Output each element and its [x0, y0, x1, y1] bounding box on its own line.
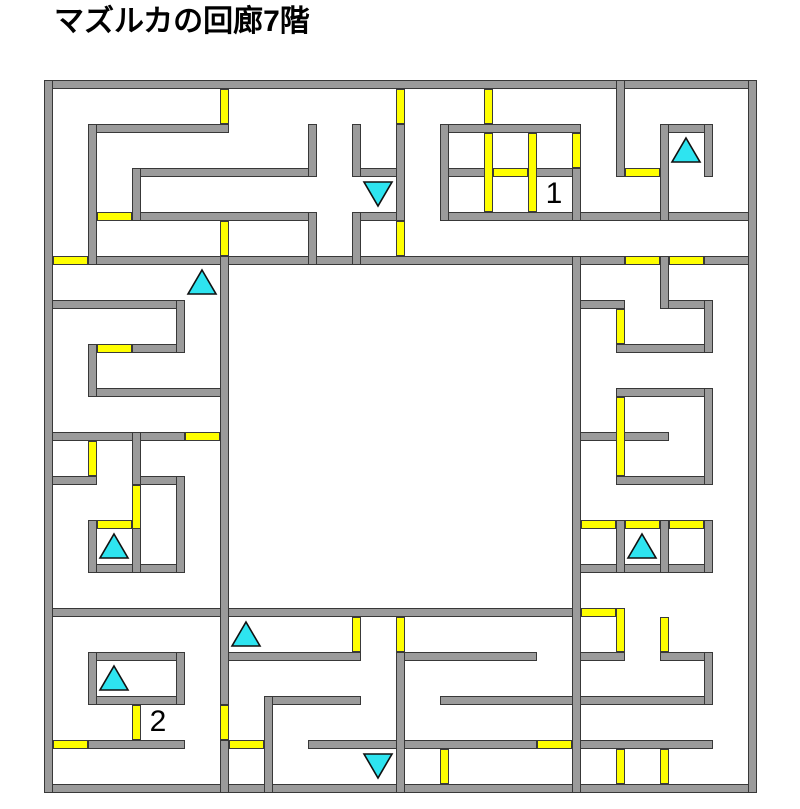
door-segment [669, 520, 704, 529]
door-segment [229, 740, 264, 749]
wall-segment [616, 520, 625, 573]
wall-segment [660, 256, 669, 309]
door-segment [396, 221, 405, 256]
wall-segment [220, 740, 229, 793]
wall-segment [704, 388, 713, 485]
wall-segment [88, 652, 97, 705]
wall-segment [572, 740, 713, 749]
door-segment [220, 89, 229, 124]
door-segment [396, 89, 405, 124]
wall-segment [396, 652, 405, 793]
room-number-label: 1 [537, 177, 572, 212]
wall-segment [132, 168, 141, 221]
door-segment [625, 256, 660, 265]
stairs-up-icon [98, 664, 130, 692]
wall-segment [264, 696, 273, 793]
stairs-up-icon [626, 532, 658, 560]
door-segment [572, 133, 581, 168]
maze-map: 12 [0, 0, 800, 809]
wall-segment [132, 168, 317, 177]
wall-segment [264, 696, 361, 705]
wall-segment [396, 652, 537, 661]
wall-segment [88, 388, 229, 397]
wall-segment [616, 344, 713, 353]
door-segment [440, 749, 449, 784]
wall-segment [132, 212, 317, 221]
wall-segment [572, 256, 581, 793]
door-segment [625, 168, 660, 177]
wall-segment [704, 124, 713, 177]
wall-segment [748, 80, 757, 793]
wall-segment [616, 476, 713, 485]
door-segment [97, 520, 132, 529]
wall-segment [308, 212, 317, 265]
stairs-down-icon [362, 752, 394, 780]
door-segment [484, 89, 493, 124]
wall-segment [308, 740, 537, 749]
door-segment [616, 608, 625, 652]
door-segment [396, 617, 405, 652]
wall-segment [660, 124, 669, 221]
door-segment [132, 485, 141, 529]
wall-segment [660, 520, 669, 573]
wall-segment [88, 740, 185, 749]
door-segment [616, 309, 625, 344]
door-segment [581, 608, 616, 617]
wall-segment [572, 564, 713, 573]
page: マズルカの回廊7階 12 [0, 0, 800, 809]
wall-segment [176, 476, 185, 573]
wall-segment [44, 300, 185, 309]
wall-segment [88, 124, 97, 265]
wall-segment [704, 652, 713, 705]
wall-segment [220, 256, 229, 705]
wall-segment [704, 300, 713, 353]
door-segment [132, 705, 141, 740]
wall-segment [44, 80, 757, 89]
door-segment [220, 221, 229, 256]
wall-segment [88, 696, 185, 705]
wall-segment [132, 432, 141, 485]
wall-segment [220, 652, 361, 661]
wall-segment [176, 300, 185, 353]
wall-segment [352, 124, 361, 177]
wall-segment [440, 212, 757, 221]
wall-segment [616, 388, 713, 397]
door-segment [220, 705, 229, 740]
wall-segment [308, 124, 317, 177]
door-segment [493, 168, 528, 177]
door-segment [97, 212, 132, 221]
wall-segment [572, 168, 581, 221]
door-segment [53, 740, 88, 749]
wall-segment [396, 124, 405, 221]
wall-segment [616, 80, 625, 177]
wall-segment [44, 608, 581, 617]
wall-segment [88, 124, 229, 133]
door-segment [352, 617, 361, 652]
door-segment [53, 256, 88, 265]
stairs-up-icon [670, 136, 702, 164]
door-segment [660, 617, 669, 652]
wall-segment [352, 212, 361, 265]
wall-segment [88, 652, 185, 661]
stairs-up-icon [186, 268, 218, 296]
wall-segment [88, 520, 97, 573]
stairs-up-icon [98, 532, 130, 560]
door-segment [97, 344, 132, 353]
wall-segment [88, 344, 97, 397]
stairs-down-icon [362, 180, 394, 208]
wall-segment [44, 80, 53, 793]
door-segment [537, 740, 572, 749]
door-segment [616, 397, 625, 476]
wall-segment [176, 652, 185, 705]
wall-segment [440, 124, 581, 133]
door-segment [484, 133, 493, 212]
wall-segment [440, 124, 449, 221]
door-segment [88, 441, 97, 476]
door-segment [660, 749, 669, 784]
door-segment [669, 256, 704, 265]
room-number-label: 2 [141, 705, 176, 740]
wall-segment [44, 432, 185, 441]
door-segment [528, 133, 537, 212]
door-segment [185, 432, 220, 441]
wall-segment [704, 520, 713, 573]
stairs-up-icon [230, 620, 262, 648]
door-segment [625, 520, 660, 529]
door-segment [616, 749, 625, 784]
door-segment [581, 520, 616, 529]
